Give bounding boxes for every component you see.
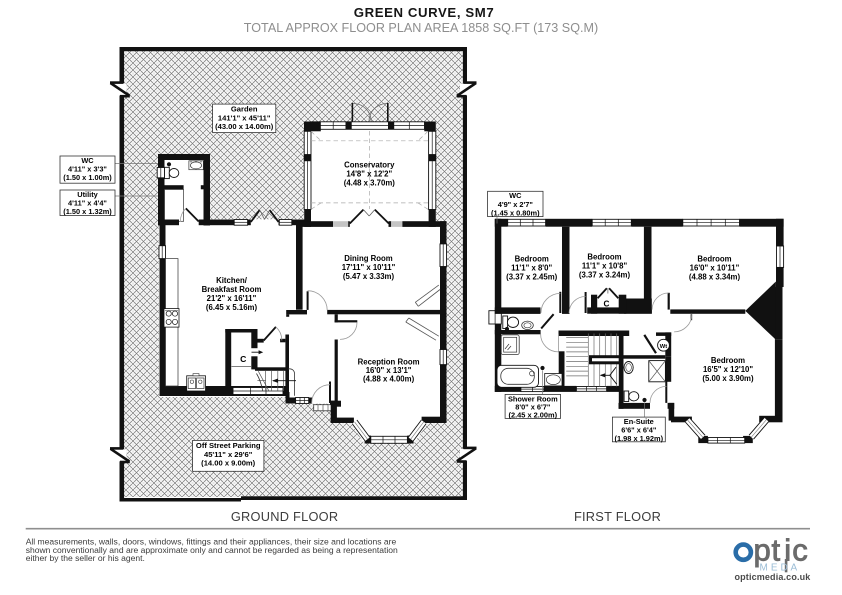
svg-text:(43.00 x 14.00m): (43.00 x 14.00m): [215, 122, 274, 131]
svg-text:Bedroom: Bedroom: [515, 255, 549, 264]
svg-text:(6.45 x 5.16m): (6.45 x 5.16m): [206, 303, 258, 312]
svg-text:GREEN CURVE, SM7: GREEN CURVE, SM7: [354, 5, 495, 20]
svg-text:17'11" x 10'11": 17'11" x 10'11": [342, 263, 396, 272]
svg-text:Conservatory: Conservatory: [344, 161, 395, 170]
svg-text:14'8" x 12'2": 14'8" x 12'2": [346, 170, 392, 179]
svg-text:(1.50 x 1.00m): (1.50 x 1.00m): [63, 173, 112, 182]
svg-text:21'2" x 16'11": 21'2" x 16'11": [207, 294, 257, 303]
svg-text:16'5" x 12'10": 16'5" x 12'10": [703, 365, 753, 374]
svg-text:Dining Room: Dining Room: [344, 254, 393, 263]
svg-text:Bedroom: Bedroom: [587, 253, 621, 262]
svg-text:(5.47 x 3.33m): (5.47 x 3.33m): [343, 272, 395, 281]
svg-text:141'1" x 45'11": 141'1" x 45'11": [218, 113, 271, 122]
svg-text:Breakfast Room: Breakfast Room: [202, 285, 262, 294]
svg-text:FIRST FLOOR: FIRST FLOOR: [574, 509, 661, 524]
svg-text:opticmedia.co.uk: opticmedia.co.uk: [735, 572, 812, 582]
svg-text:(3.37 x 3.24m): (3.37 x 3.24m): [579, 271, 631, 280]
svg-text:16'0" x 10'11": 16'0" x 10'11": [690, 264, 740, 273]
svg-text:TOTAL APPROX FLOOR PLAN AREA 1: TOTAL APPROX FLOOR PLAN AREA 1858 SQ.FT …: [244, 21, 598, 35]
svg-text:(2.45 x 2.00m): (2.45 x 2.00m): [509, 411, 558, 420]
svg-text:(4.88 x 3.34m): (4.88 x 3.34m): [689, 273, 741, 282]
svg-text:11'1" x 10'8": 11'1" x 10'8": [582, 262, 628, 271]
svg-text:(14.00 x 9.00m): (14.00 x 9.00m): [201, 459, 256, 468]
svg-text:(5.00 x 3.90m): (5.00 x 3.90m): [702, 374, 754, 383]
svg-text:(1.98 x 1.92m): (1.98 x 1.92m): [615, 434, 664, 443]
svg-text:Bedroom: Bedroom: [711, 356, 745, 365]
svg-text:Wt: Wt: [660, 344, 667, 350]
svg-text:(3.37 x 2.45m): (3.37 x 2.45m): [506, 273, 558, 282]
svg-text:Kitchen/: Kitchen/: [216, 276, 248, 285]
svg-text:C: C: [604, 300, 610, 309]
svg-text:(4.88 x 4.00m): (4.88 x 4.00m): [363, 375, 415, 384]
svg-text:(1.45 x 0.80m): (1.45 x 0.80m): [491, 208, 540, 217]
svg-text:(1.50 x 1.32m): (1.50 x 1.32m): [63, 207, 112, 216]
svg-text:11'1" x 8'0": 11'1" x 8'0": [511, 264, 552, 273]
svg-text:Garden: Garden: [231, 105, 258, 114]
svg-text:GROUND FLOOR: GROUND FLOOR: [231, 509, 339, 524]
svg-text:Bedroom: Bedroom: [697, 255, 731, 264]
svg-text:(4.48 x 3.70m): (4.48 x 3.70m): [344, 179, 396, 188]
svg-text:either by the seller or his ag: either by the seller or his agent.: [26, 553, 145, 563]
svg-text:Off Street Parking: Off Street Parking: [196, 441, 261, 450]
svg-text:45'11" x 29'6": 45'11" x 29'6": [204, 450, 253, 459]
svg-text:C: C: [240, 354, 246, 364]
